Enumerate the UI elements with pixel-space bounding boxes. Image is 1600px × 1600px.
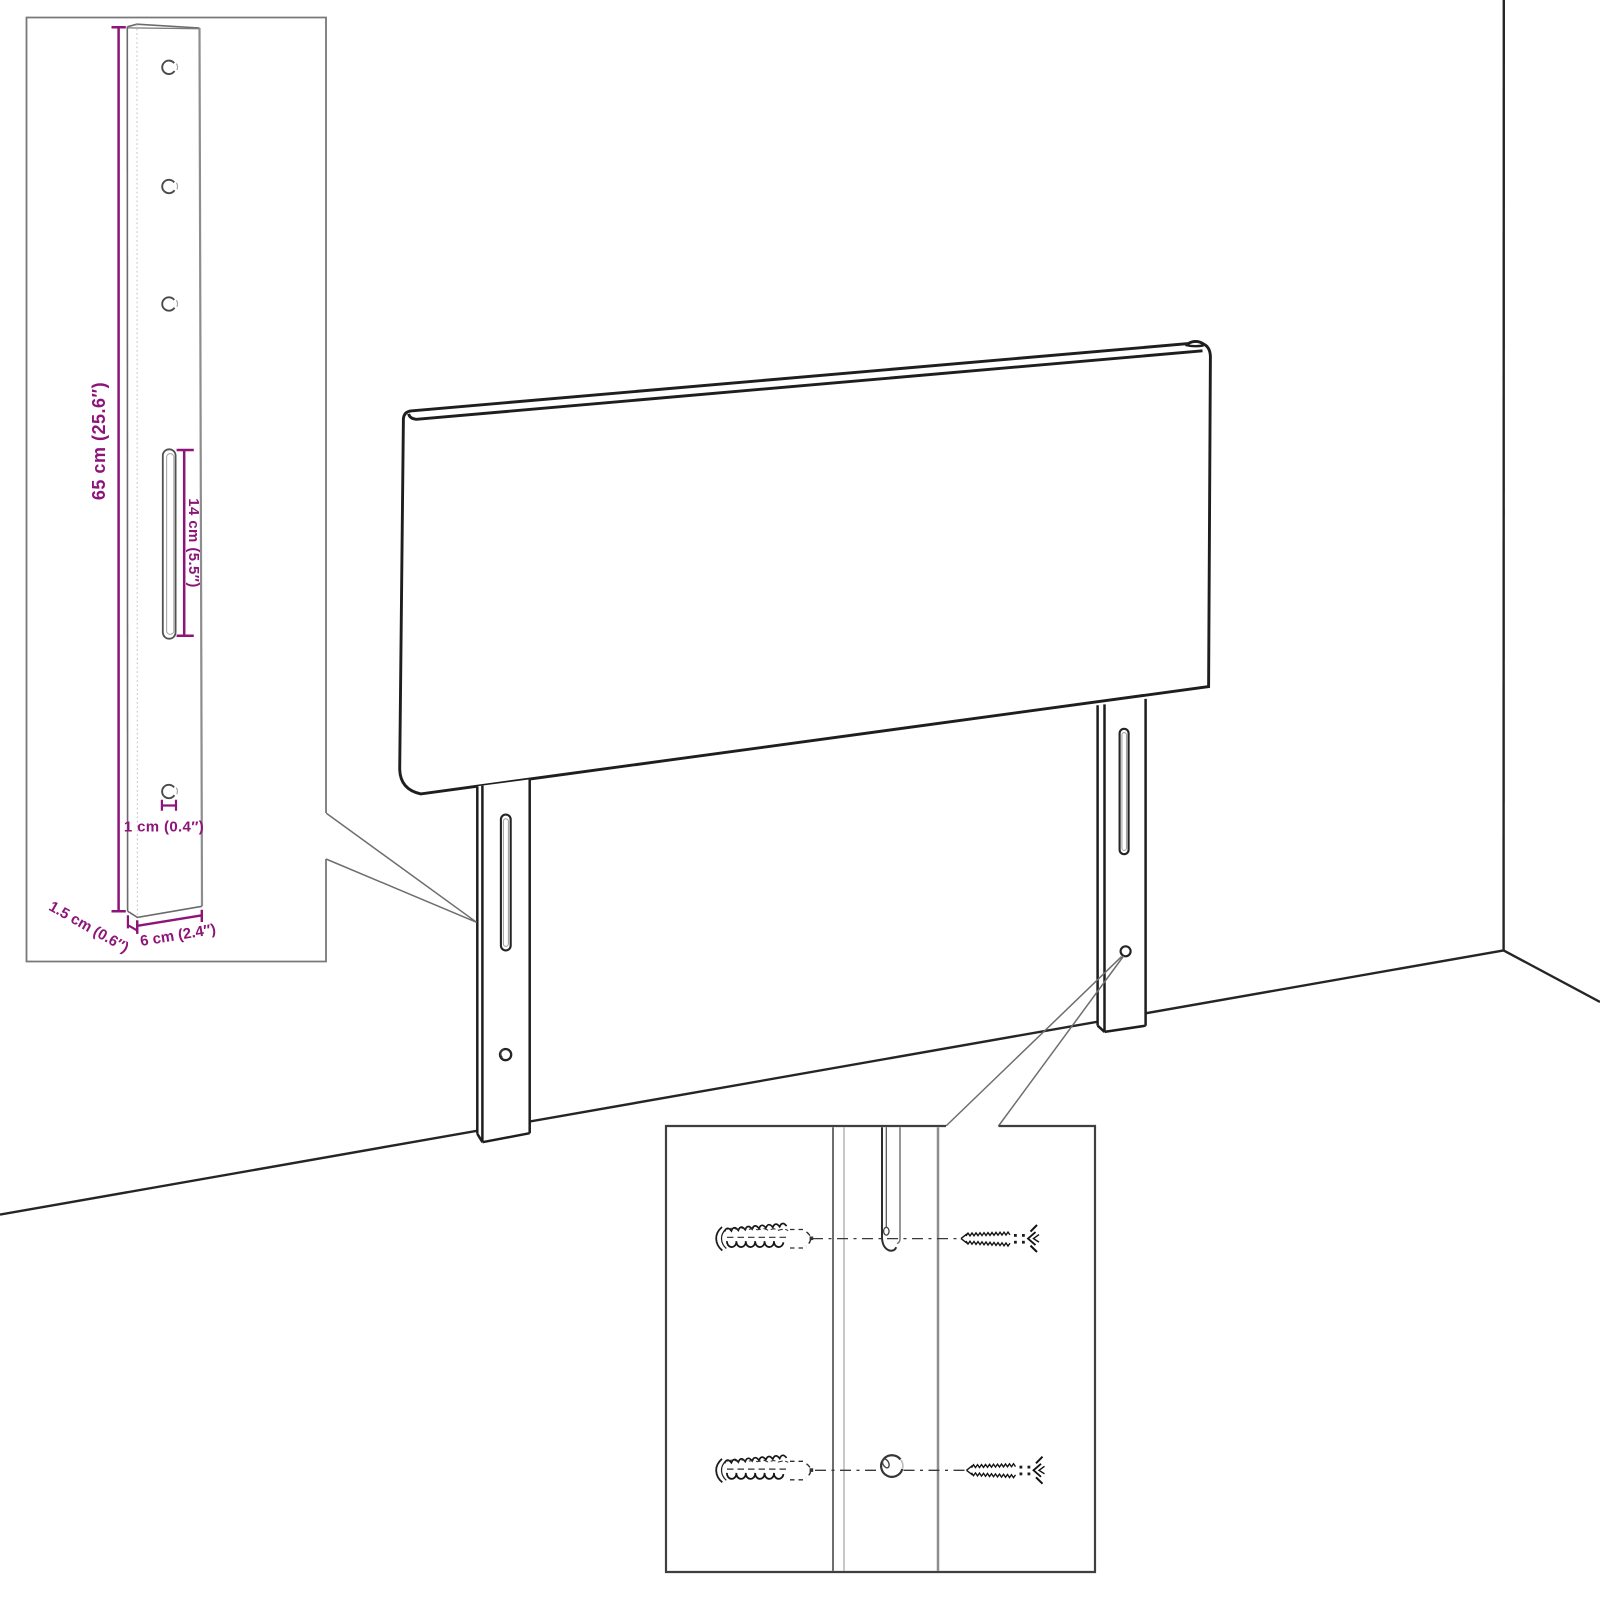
- svg-text:14 cm (5.5″): 14 cm (5.5″): [185, 498, 202, 588]
- svg-text:1 cm (0.4″): 1 cm (0.4″): [124, 818, 204, 835]
- svg-text:65 cm (25.6″): 65 cm (25.6″): [89, 382, 109, 500]
